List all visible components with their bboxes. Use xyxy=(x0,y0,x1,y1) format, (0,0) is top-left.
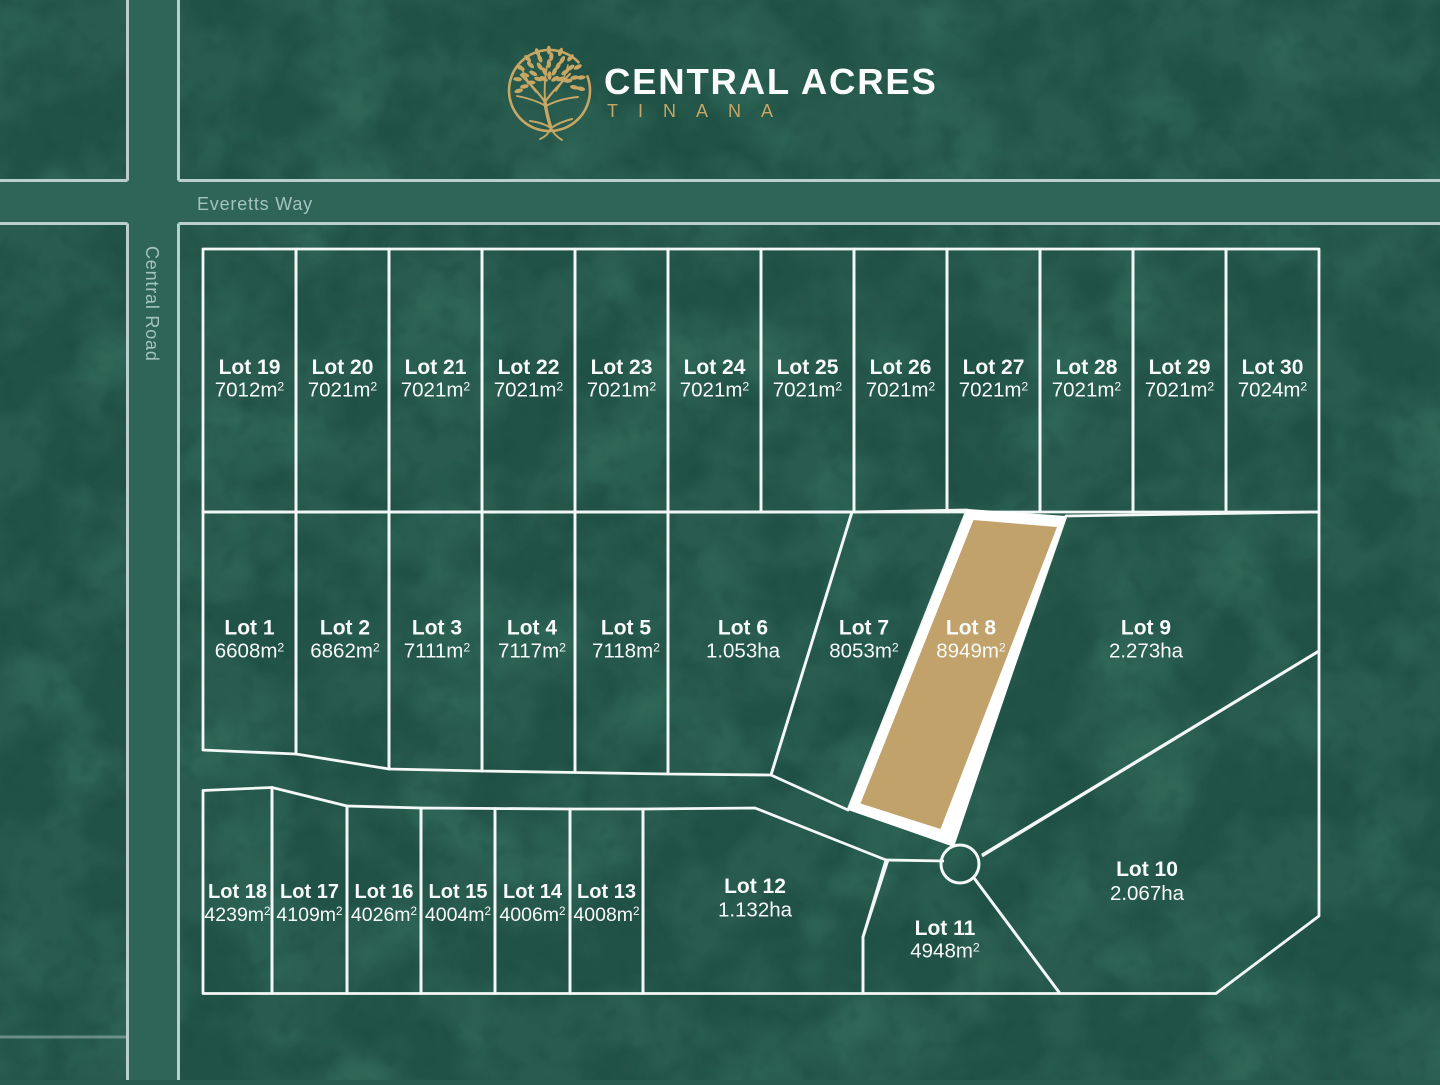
svg-text:Lot 17: Lot 17 xyxy=(280,881,339,903)
svg-text:8053m2: 8053m2 xyxy=(829,640,899,663)
svg-text:Lot 8: Lot 8 xyxy=(946,617,996,640)
svg-text:Everetts Way: Everetts Way xyxy=(197,194,313,214)
svg-text:8949m2: 8949m2 xyxy=(936,640,1006,663)
svg-text:7021m2: 7021m2 xyxy=(401,379,471,402)
svg-text:Lot 5: Lot 5 xyxy=(601,617,651,640)
svg-text:Lot 29: Lot 29 xyxy=(1149,356,1211,379)
svg-text:Lot 13: Lot 13 xyxy=(577,881,636,903)
svg-text:7021m2: 7021m2 xyxy=(1052,379,1122,402)
svg-text:Lot 7: Lot 7 xyxy=(839,617,889,640)
svg-text:4004m2: 4004m2 xyxy=(425,904,491,926)
svg-text:Lot 23: Lot 23 xyxy=(591,356,653,379)
svg-text:7021m2: 7021m2 xyxy=(308,379,378,402)
svg-text:7012m2: 7012m2 xyxy=(215,379,285,402)
svg-text:4948m2: 4948m2 xyxy=(910,940,980,963)
svg-text:Lot 27: Lot 27 xyxy=(963,356,1025,379)
svg-text:Lot 19: Lot 19 xyxy=(219,356,281,379)
svg-text:Lot 18: Lot 18 xyxy=(208,881,267,903)
svg-text:Lot 12: Lot 12 xyxy=(724,875,786,898)
svg-text:7021m2: 7021m2 xyxy=(1145,379,1215,402)
svg-text:CENTRAL ACRES: CENTRAL ACRES xyxy=(604,61,938,102)
svg-text:Lot 22: Lot 22 xyxy=(498,356,560,379)
svg-text:Lot 26: Lot 26 xyxy=(870,356,932,379)
svg-text:Lot 9: Lot 9 xyxy=(1121,617,1171,640)
svg-text:4008m2: 4008m2 xyxy=(573,904,639,926)
svg-text:Lot 11: Lot 11 xyxy=(915,917,976,940)
svg-text:Lot 10: Lot 10 xyxy=(1116,858,1178,881)
svg-text:Lot 14: Lot 14 xyxy=(503,881,563,903)
svg-text:1.053ha: 1.053ha xyxy=(706,640,781,663)
svg-text:2.273ha: 2.273ha xyxy=(1109,640,1184,663)
svg-text:Lot 28: Lot 28 xyxy=(1056,356,1118,379)
svg-text:Lot 3: Lot 3 xyxy=(412,617,462,640)
svg-text:Lot 21: Lot 21 xyxy=(405,356,467,379)
svg-text:Lot 15: Lot 15 xyxy=(429,881,488,903)
svg-text:Lot 1: Lot 1 xyxy=(224,617,274,640)
svg-text:2.067ha: 2.067ha xyxy=(1110,882,1185,905)
svg-text:7118m2: 7118m2 xyxy=(592,640,660,663)
svg-text:6862m2: 6862m2 xyxy=(310,640,380,663)
svg-text:Lot 16: Lot 16 xyxy=(355,881,414,903)
svg-text:7021m2: 7021m2 xyxy=(680,379,750,402)
svg-text:6608m2: 6608m2 xyxy=(215,640,285,663)
svg-text:7024m2: 7024m2 xyxy=(1238,379,1308,402)
svg-text:7021m2: 7021m2 xyxy=(587,379,657,402)
svg-text:4026m2: 4026m2 xyxy=(351,904,417,926)
svg-text:7117m2: 7117m2 xyxy=(498,640,566,663)
svg-text:7021m2: 7021m2 xyxy=(494,379,564,402)
svg-text:7021m2: 7021m2 xyxy=(773,379,843,402)
svg-text:4109m2: 4109m2 xyxy=(276,904,342,926)
svg-text:Lot 4: Lot 4 xyxy=(507,617,557,640)
svg-text:7111m2: 7111m2 xyxy=(404,640,471,663)
svg-text:Lot 30: Lot 30 xyxy=(1242,356,1304,379)
svg-text:Lot 2: Lot 2 xyxy=(320,617,370,640)
svg-text:7021m2: 7021m2 xyxy=(866,379,936,402)
svg-text:TINANA: TINANA xyxy=(607,101,793,121)
svg-text:4006m2: 4006m2 xyxy=(499,904,565,926)
svg-text:Lot 6: Lot 6 xyxy=(718,617,768,640)
svg-text:4239m2: 4239m2 xyxy=(204,904,270,926)
svg-text:Lot 25: Lot 25 xyxy=(777,356,839,379)
svg-text:Lot 20: Lot 20 xyxy=(312,356,374,379)
svg-text:Lot 24: Lot 24 xyxy=(684,356,746,379)
svg-text:7021m2: 7021m2 xyxy=(959,379,1029,402)
svg-text:Central Road: Central Road xyxy=(142,246,162,362)
svg-text:1.132ha: 1.132ha xyxy=(718,899,793,922)
